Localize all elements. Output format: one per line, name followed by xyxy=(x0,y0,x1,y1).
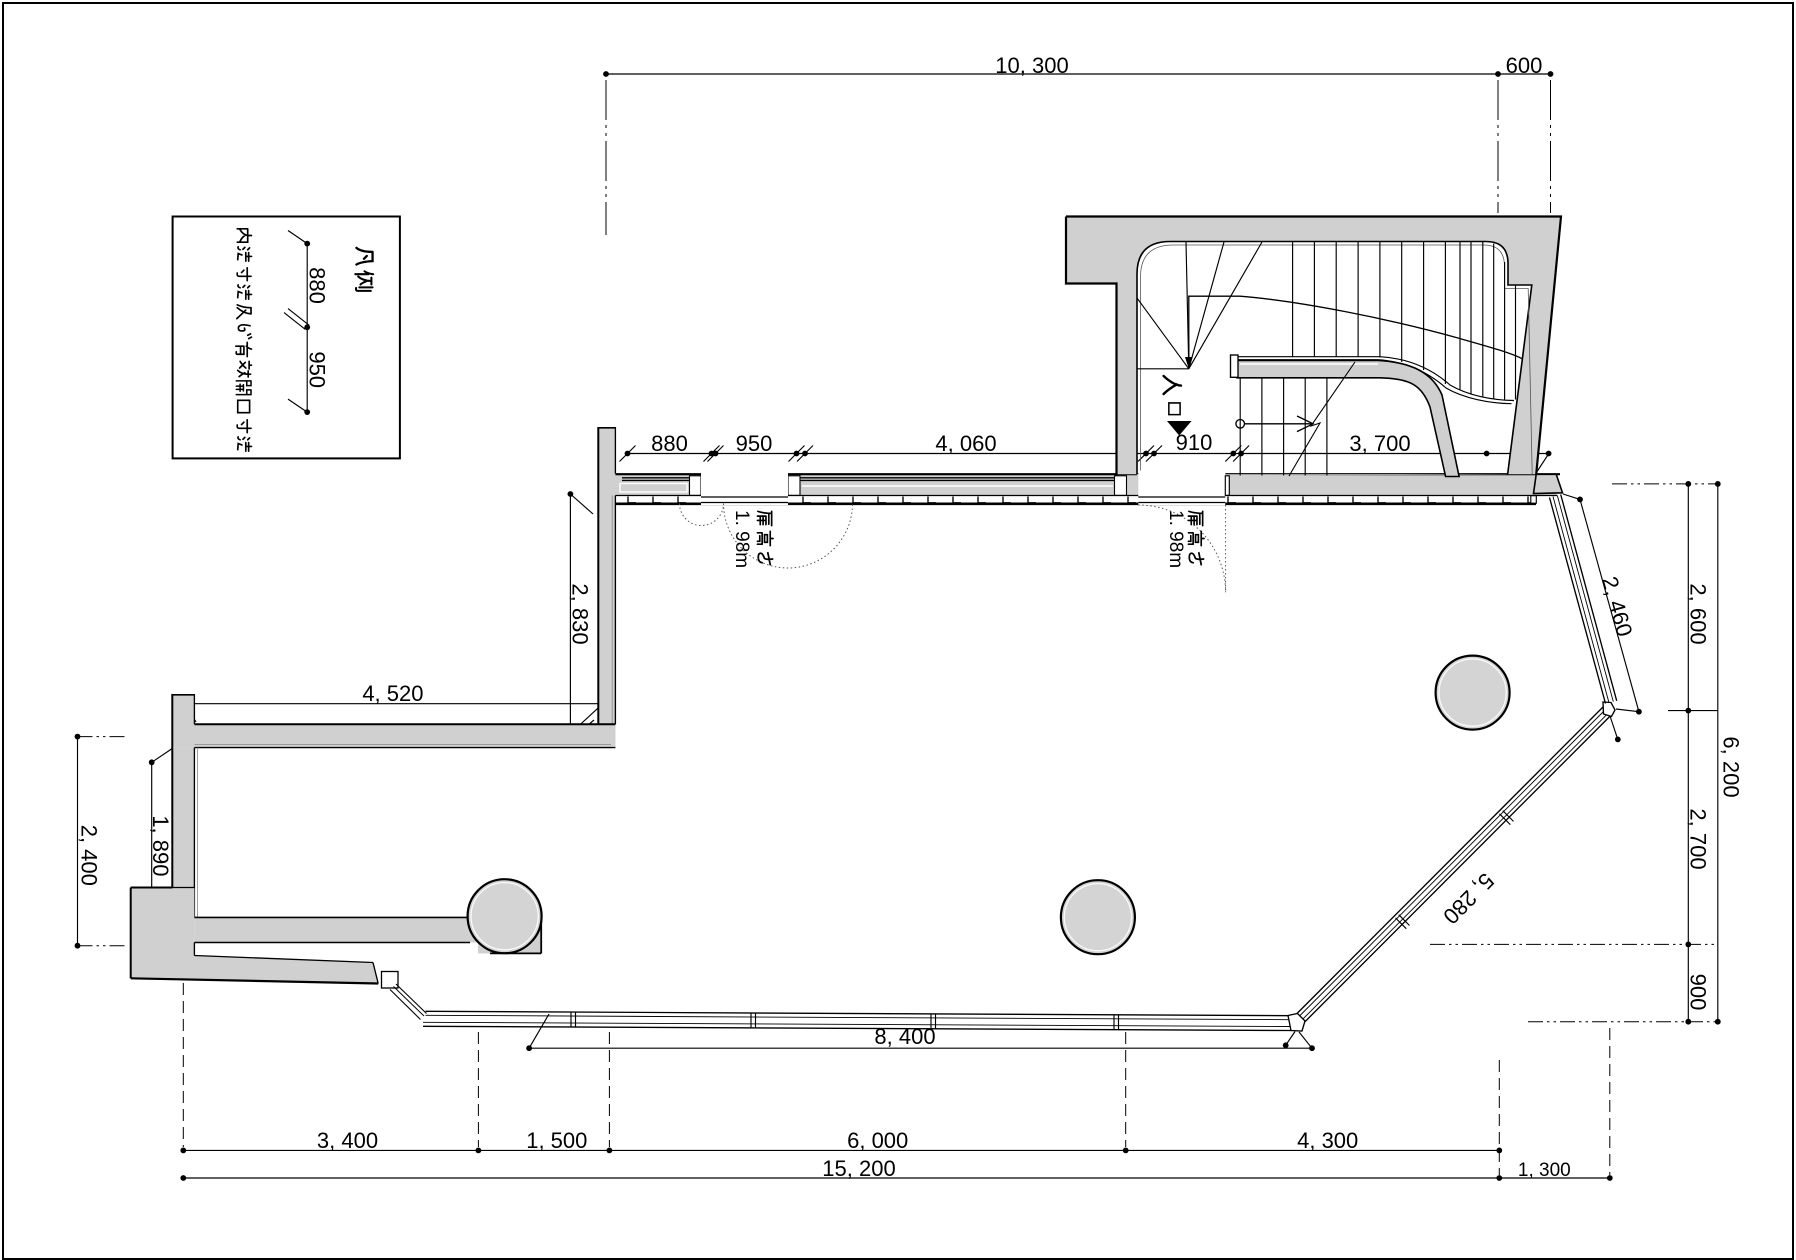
svg-text:2, 700: 2, 700 xyxy=(1685,808,1710,869)
svg-text:1, 500: 1, 500 xyxy=(526,1128,587,1153)
svg-text:6, 200: 6, 200 xyxy=(1719,736,1744,797)
svg-text:950: 950 xyxy=(304,351,329,388)
svg-text:900: 900 xyxy=(1685,974,1710,1011)
svg-text:2, 600: 2, 600 xyxy=(1685,583,1710,644)
svg-text:4, 520: 4, 520 xyxy=(362,681,423,706)
svg-text:2, 460: 2, 460 xyxy=(1597,574,1637,640)
svg-text:910: 910 xyxy=(1176,430,1213,455)
svg-text:10, 300: 10, 300 xyxy=(995,53,1068,78)
svg-text:1. 98m: 1. 98m xyxy=(731,510,752,568)
svg-text:15, 200: 15, 200 xyxy=(822,1156,895,1181)
svg-text:2, 830: 2, 830 xyxy=(568,583,593,644)
svg-text:950: 950 xyxy=(736,431,773,456)
svg-text:880: 880 xyxy=(651,431,688,456)
svg-text:4, 300: 4, 300 xyxy=(1297,1128,1358,1153)
svg-text:4, 060: 4, 060 xyxy=(935,431,996,456)
svg-text:600: 600 xyxy=(1506,53,1543,78)
svg-text:1, 300: 1, 300 xyxy=(1518,1160,1571,1181)
svg-text:2, 400: 2, 400 xyxy=(77,825,102,886)
svg-text:880: 880 xyxy=(304,267,329,304)
svg-text:1. 98m: 1. 98m xyxy=(1165,510,1186,568)
svg-text:8, 400: 8, 400 xyxy=(874,1024,935,1049)
svg-text:1, 890: 1, 890 xyxy=(148,815,173,876)
svg-text:5, 280: 5, 280 xyxy=(1438,868,1499,929)
svg-text:3, 400: 3, 400 xyxy=(317,1128,378,1153)
svg-text:6, 000: 6, 000 xyxy=(847,1128,908,1153)
svg-text:3, 700: 3, 700 xyxy=(1349,431,1410,456)
